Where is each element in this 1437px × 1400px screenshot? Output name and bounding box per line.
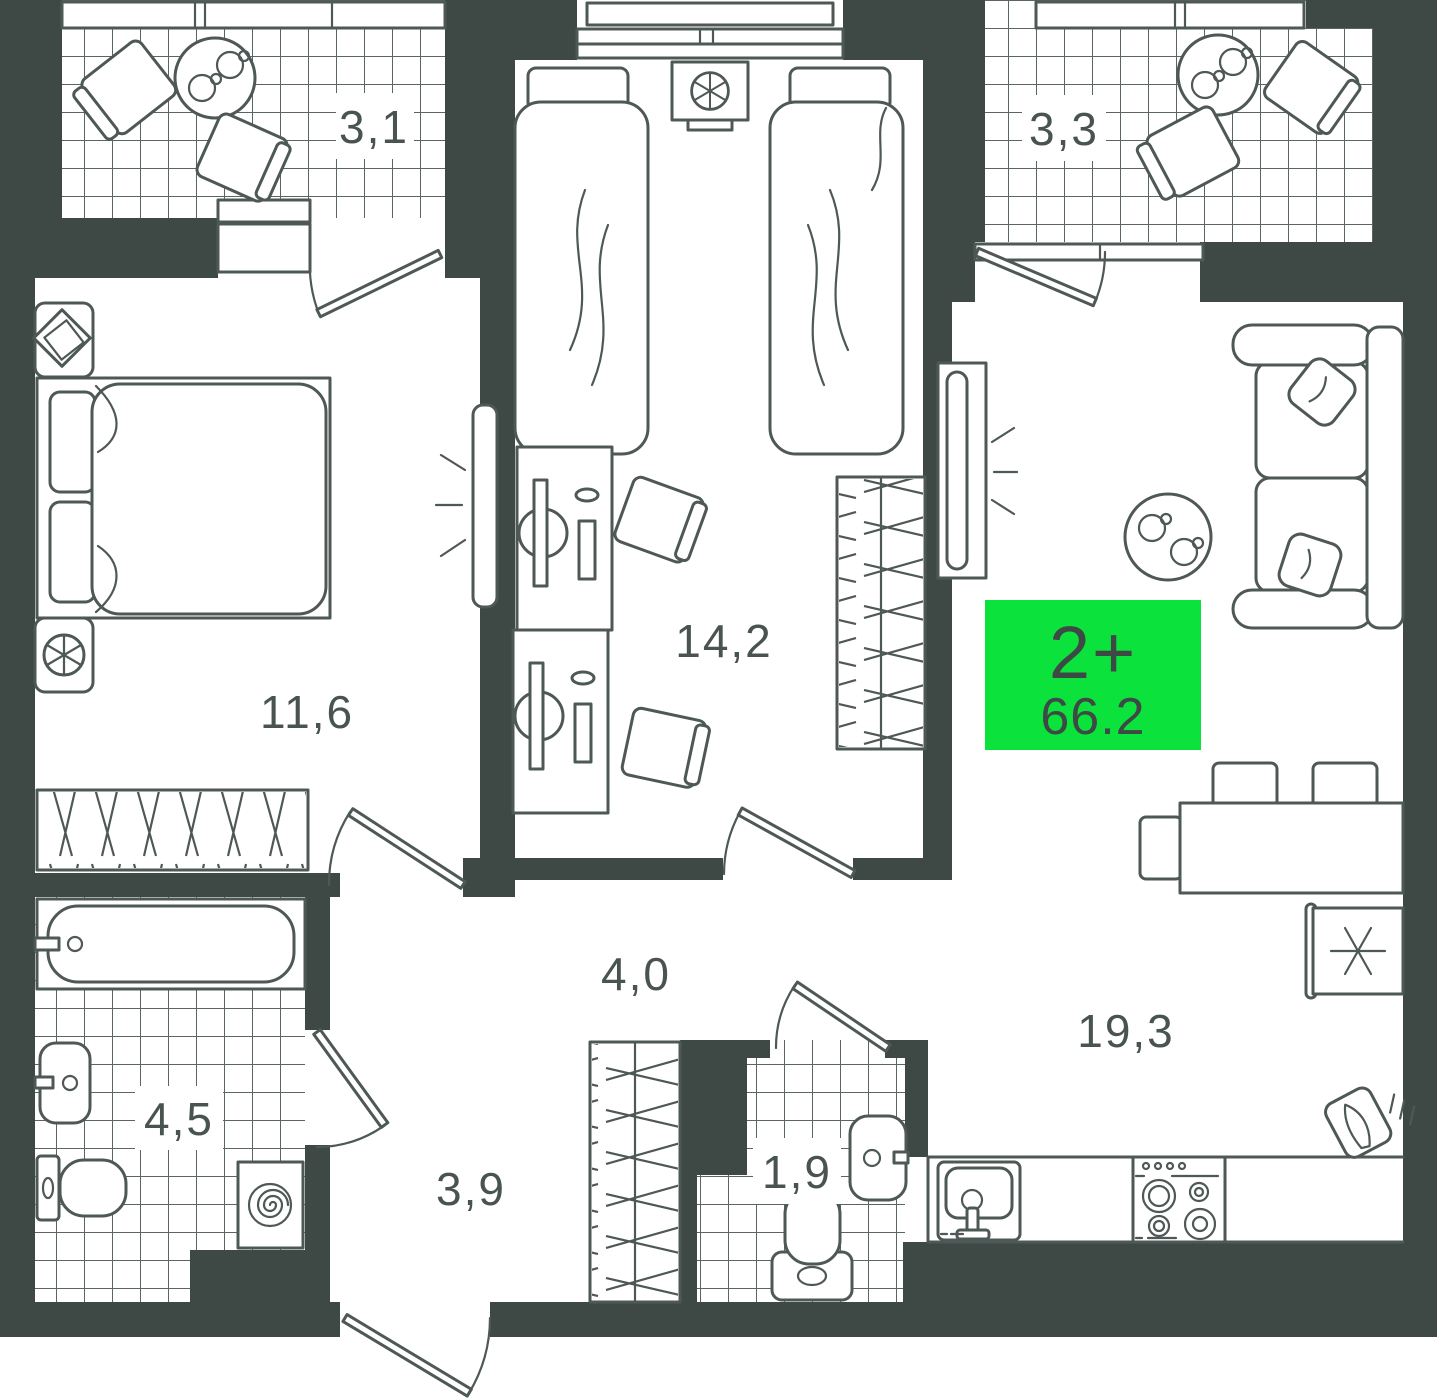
window-living-balcony xyxy=(975,244,1203,260)
room-label-bedroom: 11,6 xyxy=(260,686,354,738)
door-children-room xyxy=(724,808,855,878)
nightstand-plant xyxy=(35,618,93,692)
room-label-balcony-1: 3,1 xyxy=(339,101,409,153)
floor-plan-page: 3,1 3,3 11,6 14,2 4,0 4,5 3,9 1,9 19,3 2… xyxy=(0,0,1437,1400)
tv-bedroom xyxy=(436,405,497,607)
wardrobe-hall xyxy=(590,1042,680,1302)
sofa xyxy=(1233,325,1403,628)
window-bedroom-balcony xyxy=(218,200,310,272)
badge-rooms-label: 2+ xyxy=(1049,611,1137,694)
kitchen-living-furniture xyxy=(928,325,1423,1242)
door-bathroom xyxy=(314,1030,388,1147)
desk-chair-icon xyxy=(613,475,710,566)
kitchen-sink xyxy=(938,1162,1020,1240)
room-label-children-room: 14,2 xyxy=(675,615,773,667)
nightstand-children xyxy=(672,62,748,130)
fridge xyxy=(1306,904,1403,998)
cafe-table-icon xyxy=(175,38,255,118)
floor-plan: 3,1 3,3 11,6 14,2 4,0 4,5 3,9 1,9 19,3 2… xyxy=(0,0,1437,1400)
room-label-bathroom: 4,5 xyxy=(144,1093,214,1145)
washing-machine xyxy=(238,1162,303,1248)
room-label-hall: 3,9 xyxy=(436,1163,506,1215)
dining-set xyxy=(1140,763,1403,893)
nightstand-decor xyxy=(34,303,93,377)
door-bedroom xyxy=(329,809,465,889)
bathroom-sink xyxy=(35,1043,90,1123)
window-children-room xyxy=(577,3,843,58)
tv-living xyxy=(938,363,1017,578)
apartment-badge: 2+ 66.2 xyxy=(985,600,1201,750)
balcony-right-railing xyxy=(1036,2,1304,28)
double-bed xyxy=(37,378,330,618)
desk-2 xyxy=(513,630,608,813)
balcony-left-railing xyxy=(62,2,445,28)
wardrobe-bedroom xyxy=(37,790,308,870)
children-room-furniture xyxy=(513,62,925,813)
wc-sink xyxy=(850,1116,908,1200)
door-bedroom-balcony xyxy=(310,250,442,316)
room-label-wc: 1,9 xyxy=(762,1146,832,1198)
bed-single-left xyxy=(515,68,648,454)
kitchen-counter xyxy=(928,1157,1403,1242)
desk-1 xyxy=(517,447,612,630)
coffee-table xyxy=(1125,494,1211,580)
bathtub xyxy=(35,899,305,989)
badge-area-value: 66.2 xyxy=(1040,688,1145,746)
desk-chair-icon xyxy=(621,707,711,790)
room-label-balcony-2: 3,3 xyxy=(1029,103,1099,155)
room-label-corridor: 4,0 xyxy=(601,948,671,1000)
bathroom-toilet xyxy=(37,1156,126,1220)
wardrobe-children xyxy=(837,477,925,749)
door-entrance xyxy=(343,1315,490,1397)
cafe-table-icon xyxy=(1178,35,1258,115)
stove xyxy=(1136,1163,1218,1239)
room-label-kitchen-living: 19,3 xyxy=(1077,1005,1175,1057)
bedroom-furniture xyxy=(34,303,497,870)
bed-single-right xyxy=(770,68,903,454)
